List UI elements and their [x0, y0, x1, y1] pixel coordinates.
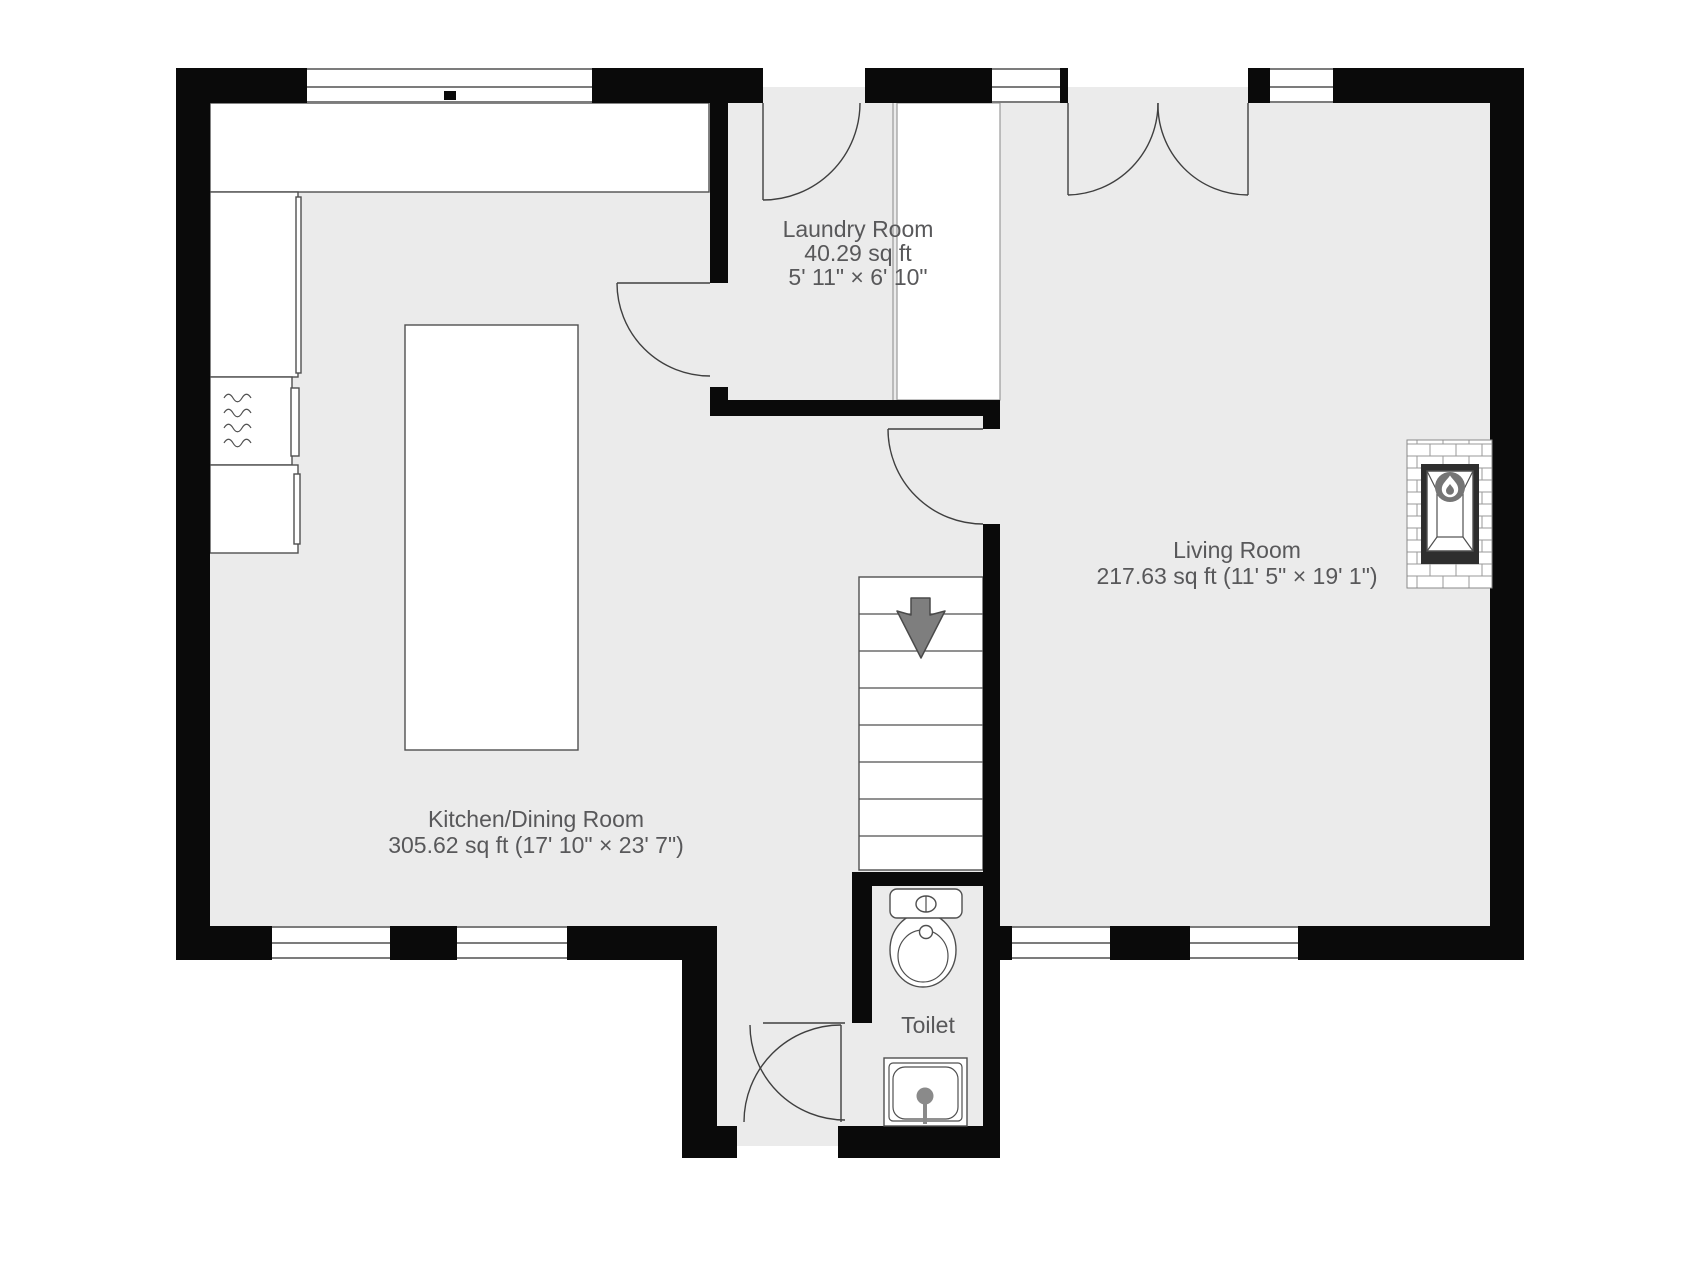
kitchen-island [405, 325, 578, 750]
kitchen-dining-area-dims: 305.62 sq ft (17' 10" × 23' 7") [388, 832, 684, 858]
refrigerator-door [296, 197, 301, 373]
kitchen-counter [210, 103, 709, 192]
stairs [859, 577, 983, 870]
laundry-bottom-wall [710, 400, 1000, 416]
living-room-label: Living Room [1173, 537, 1301, 563]
window [457, 926, 567, 960]
window [307, 68, 592, 103]
fireplace-flame-icon [1435, 472, 1465, 502]
laundry-room-area: 40.29 sq ft [804, 240, 912, 266]
right-exterior-wall [1490, 68, 1524, 960]
kitchen-dining-label: Kitchen/Dining Room [428, 806, 644, 832]
sink-icon [884, 1058, 967, 1126]
front-door-threshold [763, 87, 865, 103]
window [272, 926, 390, 960]
base-cabinet-door [294, 474, 300, 544]
toilet-left-wall [852, 886, 872, 1023]
microwave-icon [210, 377, 299, 465]
laundry-room-dims: 5' 11" × 6' 10" [788, 264, 927, 290]
window [1270, 68, 1333, 103]
fireplace [1407, 440, 1492, 588]
left-exterior-wall [176, 68, 210, 960]
french-door-threshold [1068, 87, 1248, 103]
toilet-label: Toilet [901, 1012, 955, 1038]
hall-living-wall [983, 524, 1000, 1158]
floor-plan-page: Laundry Room 40.29 sq ft 5' 11" × 6' 10"… [0, 0, 1696, 1280]
base-cabinet [210, 465, 298, 553]
window [1190, 926, 1298, 960]
faucet-icon [917, 1088, 934, 1105]
floor-plan: Laundry Room 40.29 sq ft 5' 11" × 6' 10"… [0, 0, 1696, 1280]
window [992, 68, 1060, 103]
window [1012, 926, 1110, 960]
laundry-room-label: Laundry Room [783, 216, 934, 242]
refrigerator [210, 192, 298, 377]
living-room-area-dims: 217.63 sq ft (11' 5" × 19' 1") [1096, 563, 1377, 589]
back-door-threshold [737, 1126, 838, 1146]
window-mullion [444, 91, 456, 100]
laundry-left-wall [710, 103, 728, 283]
